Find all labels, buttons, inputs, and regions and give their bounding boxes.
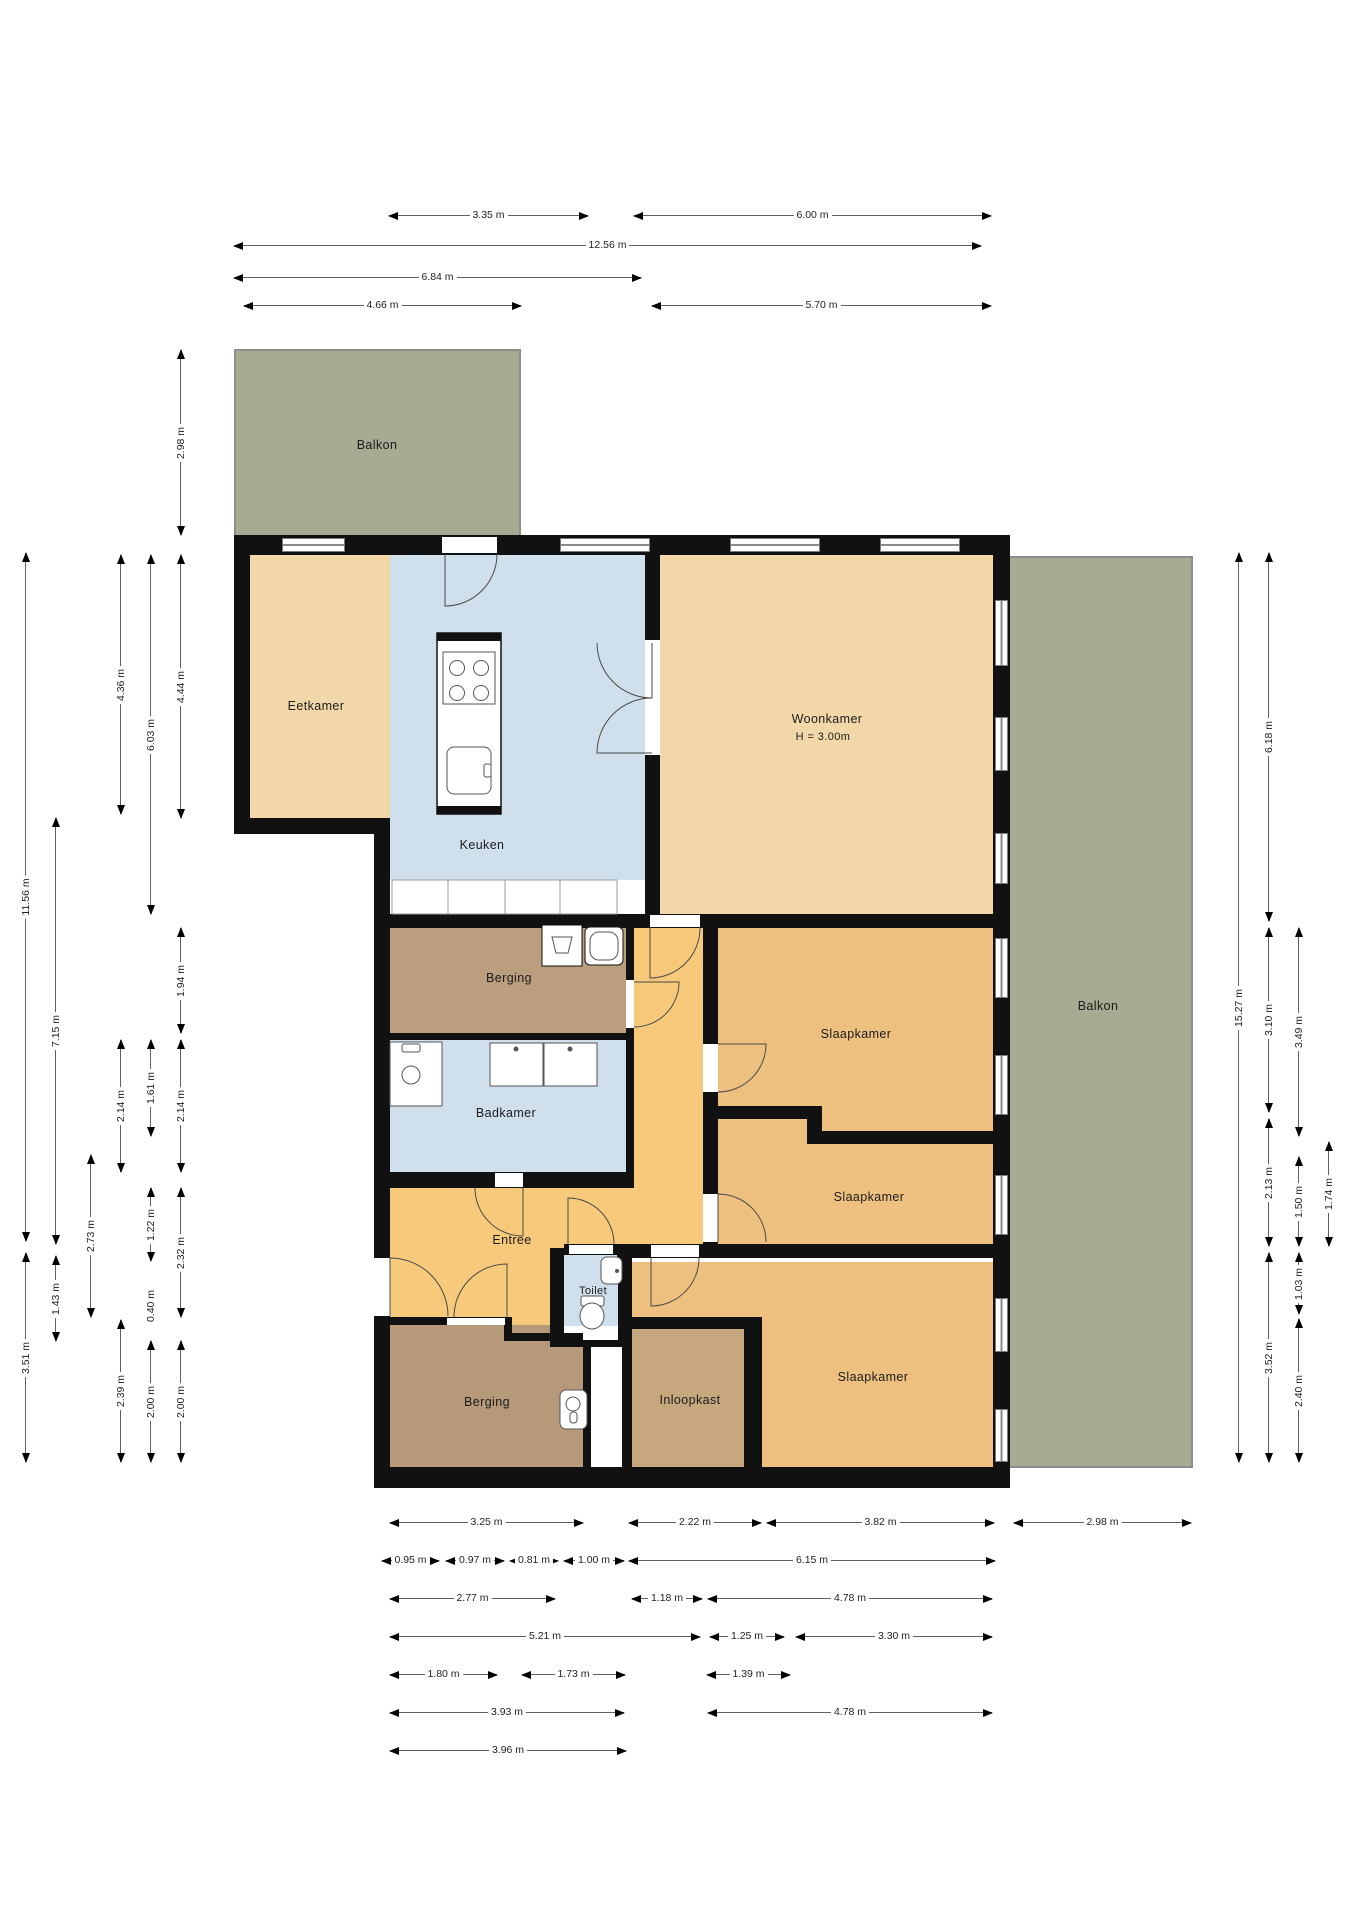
dimension-value: 2.32 m bbox=[176, 1233, 188, 1271]
dimension-value: 3.96 m bbox=[489, 1745, 527, 1757]
dimension-value: 3.25 m bbox=[467, 1517, 505, 1529]
dimension-4.66-m: 4.66 m bbox=[244, 305, 521, 306]
dimension-value: 3.35 m bbox=[469, 210, 507, 222]
dimension-2.00-m: 2.00 m bbox=[180, 1341, 181, 1462]
dimension-2.14-m: 2.14 m bbox=[120, 1040, 121, 1172]
dimension-4.44-m: 4.44 m bbox=[180, 555, 181, 818]
kitchen-counter-icon bbox=[448, 880, 505, 914]
cooktop-icon bbox=[443, 652, 495, 704]
room-label: Entree bbox=[492, 1233, 531, 1247]
dimension-value: 6.18 m bbox=[1264, 718, 1276, 756]
dimension-value: 2.14 m bbox=[116, 1087, 128, 1125]
island-edge-icon bbox=[437, 806, 501, 814]
dimension-3.96-m: 3.96 m bbox=[390, 1750, 626, 1751]
dimension-value: 3.93 m bbox=[488, 1707, 526, 1719]
room-label: Keuken bbox=[460, 838, 505, 852]
door-arc bbox=[634, 982, 679, 1027]
door-arc bbox=[718, 1194, 766, 1242]
door-arc bbox=[597, 698, 652, 753]
island-edge-icon bbox=[437, 633, 501, 641]
dimension-value: 15.27 m bbox=[1234, 986, 1246, 1030]
dimension-value: 1.39 m bbox=[729, 1669, 767, 1681]
dimension-value: 1.03 m bbox=[1294, 1264, 1306, 1302]
dimension-value: 5.21 m bbox=[526, 1631, 564, 1643]
room-label: Inloopkast bbox=[660, 1393, 721, 1407]
dimension-value: 6.84 m bbox=[418, 272, 456, 284]
hand-basin-tap-icon bbox=[615, 1269, 619, 1273]
island-faucet-icon bbox=[484, 764, 491, 777]
dimension-value: 7.15 m bbox=[51, 1012, 63, 1050]
dimension-1.74-m: 1.74 m bbox=[1328, 1142, 1329, 1246]
room-label: Slaapkamer bbox=[838, 1370, 909, 1384]
dimension-value: 1.43 m bbox=[51, 1279, 63, 1317]
dimension-value: 1.18 m bbox=[648, 1593, 686, 1605]
dimension-15.27-m: 15.27 m bbox=[1238, 553, 1239, 1462]
door-arc bbox=[445, 554, 497, 606]
door-arc bbox=[454, 1264, 507, 1317]
door-arc bbox=[568, 1198, 614, 1244]
washer-icon bbox=[542, 925, 582, 966]
room-label: Badkamer bbox=[476, 1106, 536, 1120]
dimension-value: 4.78 m bbox=[831, 1593, 869, 1605]
dimension-0.97-m: 0.97 m bbox=[446, 1560, 504, 1561]
dimension-4.78-m: 4.78 m bbox=[708, 1598, 992, 1599]
dimension-1.00-m: 1.00 m bbox=[564, 1560, 624, 1561]
dimension-value: 3.49 m bbox=[1294, 1013, 1306, 1051]
dimension-value: 4.78 m bbox=[831, 1707, 869, 1719]
room-label: Eetkamer bbox=[288, 699, 345, 713]
dimension-1.25-m: 1.25 m bbox=[710, 1636, 784, 1637]
dimension-0.40-m: 0.40 m bbox=[150, 1294, 151, 1318]
door-arc bbox=[475, 1188, 523, 1236]
dimension-value: 2.40 m bbox=[1294, 1371, 1306, 1409]
dimension-2.98-m: 2.98 m bbox=[1014, 1522, 1191, 1523]
dimension-1.80-m: 1.80 m bbox=[390, 1674, 497, 1675]
dimension-value: 2.00 m bbox=[146, 1382, 158, 1420]
dimension-value: 3.30 m bbox=[875, 1631, 913, 1643]
dimension-6.03-m: 6.03 m bbox=[150, 555, 151, 914]
dimension-1.39-m: 1.39 m bbox=[707, 1674, 790, 1675]
dimension-value: 1.80 m bbox=[424, 1669, 462, 1681]
dimension-value: 1.94 m bbox=[176, 961, 188, 999]
dimension-value: 1.00 m bbox=[575, 1555, 613, 1567]
dimension-2.22-m: 2.22 m bbox=[629, 1522, 761, 1523]
dimension-value: 2.73 m bbox=[86, 1217, 98, 1255]
room-label: Woonkamer bbox=[792, 712, 863, 726]
shower-tap-icon bbox=[402, 1044, 420, 1052]
dimension-value: 1.74 m bbox=[1324, 1175, 1336, 1213]
dimension-value: 11.56 m bbox=[21, 875, 33, 918]
wc-bowl-icon bbox=[580, 1303, 604, 1329]
door-arc bbox=[718, 1044, 766, 1092]
dimension-value: 6.00 m bbox=[793, 210, 831, 222]
dimension-0.95-m: 0.95 m bbox=[382, 1560, 439, 1561]
room-label: Berging bbox=[486, 971, 532, 985]
dimension-12.56-m: 12.56 m bbox=[234, 245, 981, 246]
dimension-3.52-m: 3.52 m bbox=[1268, 1253, 1269, 1462]
dimension-3.93-m: 3.93 m bbox=[390, 1712, 624, 1713]
dimension-1.50-m: 1.50 m bbox=[1298, 1157, 1299, 1246]
dimension-value: 4.66 m bbox=[363, 300, 401, 312]
dimension-3.30-m: 3.30 m bbox=[796, 1636, 992, 1637]
dimension-value: 2.39 m bbox=[116, 1372, 128, 1410]
room-label: Balkon bbox=[357, 438, 398, 452]
dimension-3.25-m: 3.25 m bbox=[390, 1522, 583, 1523]
dimension-value: 1.61 m bbox=[146, 1069, 158, 1107]
dimension-6.84-m: 6.84 m bbox=[234, 277, 641, 278]
dimension-value: 0.95 m bbox=[391, 1555, 429, 1567]
doors-fixtures-overlay bbox=[0, 0, 1358, 1920]
dimension-2.39-m: 2.39 m bbox=[120, 1320, 121, 1462]
dimension-value: 2.77 m bbox=[453, 1593, 491, 1605]
dimension-1.73-m: 1.73 m bbox=[522, 1674, 625, 1675]
dimension-value: 0.40 m bbox=[146, 1287, 158, 1325]
dimension-2.73-m: 2.73 m bbox=[90, 1155, 91, 1317]
dimension-11.56-m: 11.56 m bbox=[25, 553, 26, 1241]
dimension-2.14-m: 2.14 m bbox=[180, 1040, 181, 1172]
dimension-value: 3.10 m bbox=[1264, 1001, 1276, 1039]
dimension-3.35-m: 3.35 m bbox=[389, 215, 588, 216]
dimension-6.00-m: 6.00 m bbox=[634, 215, 991, 216]
dimension-value: 3.51 m bbox=[21, 1338, 33, 1376]
dimension-value: 1.22 m bbox=[146, 1205, 158, 1243]
dimension-value: 6.03 m bbox=[146, 715, 158, 753]
dimension-1.61-m: 1.61 m bbox=[150, 1040, 151, 1136]
door-arc bbox=[651, 1258, 699, 1306]
dimension-1.03-m: 1.03 m bbox=[1298, 1253, 1299, 1314]
kitchen-counter-icon bbox=[505, 880, 560, 914]
dimension-value: 4.44 m bbox=[176, 667, 188, 705]
dimension-3.82-m: 3.82 m bbox=[767, 1522, 994, 1523]
dimension-2.32-m: 2.32 m bbox=[180, 1188, 181, 1317]
dimension-4.78-m: 4.78 m bbox=[708, 1712, 992, 1713]
dimension-2.77-m: 2.77 m bbox=[390, 1598, 555, 1599]
dimension-2.13-m: 2.13 m bbox=[1268, 1119, 1269, 1246]
dimension-value: 0.81 m bbox=[515, 1555, 553, 1567]
basin-tap-icon bbox=[514, 1047, 519, 1052]
dimension-1.94-m: 1.94 m bbox=[180, 928, 181, 1033]
dimension-1.43-m: 1.43 m bbox=[55, 1256, 56, 1341]
room-label: Balkon bbox=[1078, 999, 1119, 1013]
room-label: H = 3.00m bbox=[796, 731, 851, 743]
dimension-3.51-m: 3.51 m bbox=[25, 1253, 26, 1462]
door-arc bbox=[650, 928, 700, 978]
dimension-value: 1.73 m bbox=[554, 1669, 592, 1681]
room-label: Berging bbox=[464, 1395, 510, 1409]
dimension-3.10-m: 3.10 m bbox=[1268, 928, 1269, 1112]
basin-tap-icon bbox=[568, 1047, 573, 1052]
door-arc bbox=[597, 643, 652, 698]
dimension-5.70-m: 5.70 m bbox=[652, 305, 991, 306]
dimension-2.40-m: 2.40 m bbox=[1298, 1319, 1299, 1462]
dimension-value: 0.97 m bbox=[456, 1555, 494, 1567]
dimension-4.36-m: 4.36 m bbox=[120, 555, 121, 814]
dimension-value: 2.14 m bbox=[176, 1087, 188, 1125]
dimension-value: 1.25 m bbox=[728, 1631, 766, 1643]
dimension-value: 1.50 m bbox=[1294, 1182, 1306, 1220]
dimension-3.49-m: 3.49 m bbox=[1298, 928, 1299, 1136]
dimension-1.18-m: 1.18 m bbox=[632, 1598, 702, 1599]
room-label: Toilet bbox=[579, 1285, 607, 1297]
kitchen-counter-icon bbox=[560, 880, 617, 914]
dimension-value: 12.56 m bbox=[586, 240, 630, 252]
room-label: Slaapkamer bbox=[834, 1190, 905, 1204]
dimension-value: 5.70 m bbox=[802, 300, 840, 312]
dimension-value: 2.13 m bbox=[1264, 1163, 1276, 1201]
dimension-value: 2.98 m bbox=[176, 423, 188, 461]
dimension-2.98-m: 2.98 m bbox=[180, 350, 181, 535]
floorplan-canvas: BalkonEetkamerKeukenWoonkamerH = 3.00mSl… bbox=[0, 0, 1358, 1920]
dimension-value: 4.36 m bbox=[116, 665, 128, 703]
dimension-value: 6.15 m bbox=[793, 1555, 831, 1567]
boiler-slot-icon bbox=[570, 1412, 577, 1423]
kitchen-counter-icon bbox=[392, 880, 448, 914]
room-label: Slaapkamer bbox=[821, 1027, 892, 1041]
dimension-value: 3.82 m bbox=[861, 1517, 899, 1529]
dimension-6.15-m: 6.15 m bbox=[629, 1560, 995, 1561]
dimension-7.15-m: 7.15 m bbox=[55, 818, 56, 1244]
dimension-value: 2.00 m bbox=[176, 1382, 188, 1420]
dimension-value: 2.98 m bbox=[1083, 1517, 1121, 1529]
dryer-drum-icon bbox=[590, 932, 618, 960]
dimension-1.22-m: 1.22 m bbox=[150, 1188, 151, 1261]
dimension-2.00-m: 2.00 m bbox=[150, 1341, 151, 1462]
dimension-value: 2.22 m bbox=[676, 1517, 714, 1529]
dimension-value: 3.52 m bbox=[1264, 1338, 1276, 1376]
dimension-0.81-m: 0.81 m bbox=[510, 1560, 558, 1561]
dimension-6.18-m: 6.18 m bbox=[1268, 553, 1269, 921]
dimension-5.21-m: 5.21 m bbox=[390, 1636, 700, 1637]
door-arc bbox=[390, 1258, 448, 1316]
